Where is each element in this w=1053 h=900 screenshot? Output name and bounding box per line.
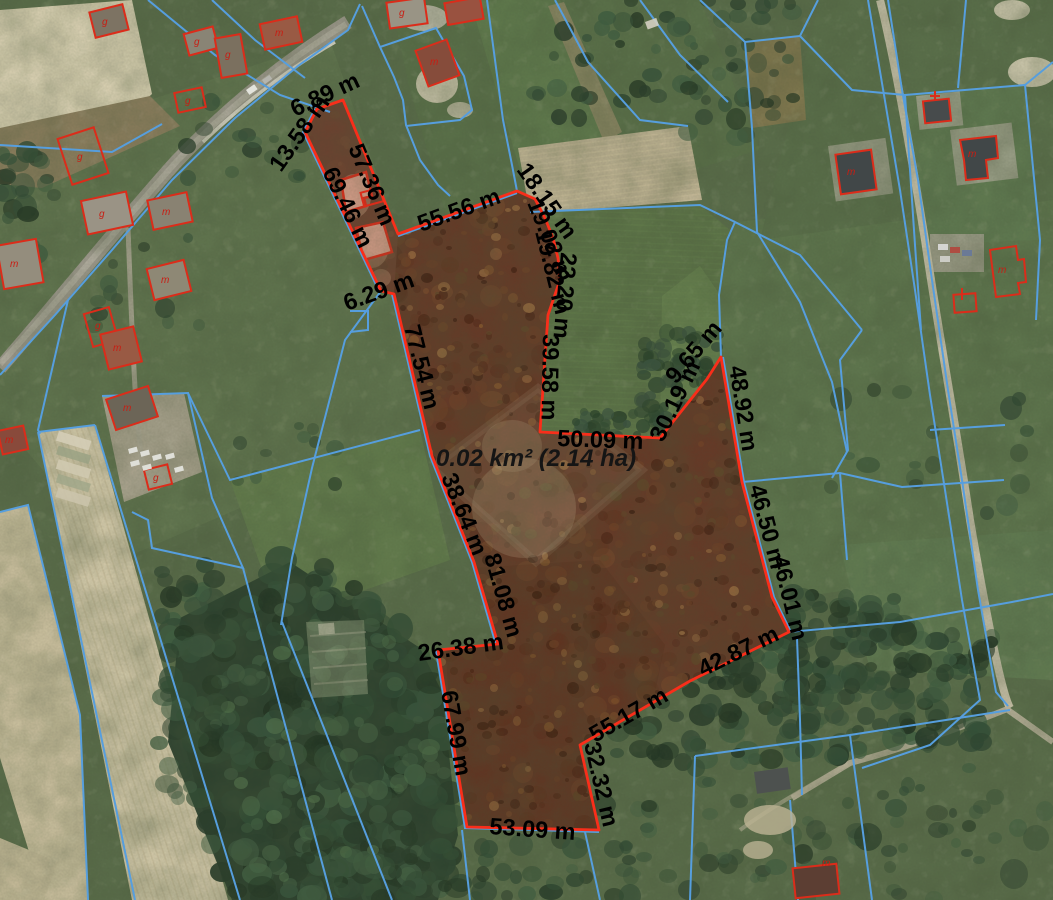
svg-text:0.02 km² (2.14 ha): 0.02 km² (2.14 ha) bbox=[436, 445, 636, 472]
svg-text:39.58 m: 39.58 m bbox=[536, 334, 564, 421]
